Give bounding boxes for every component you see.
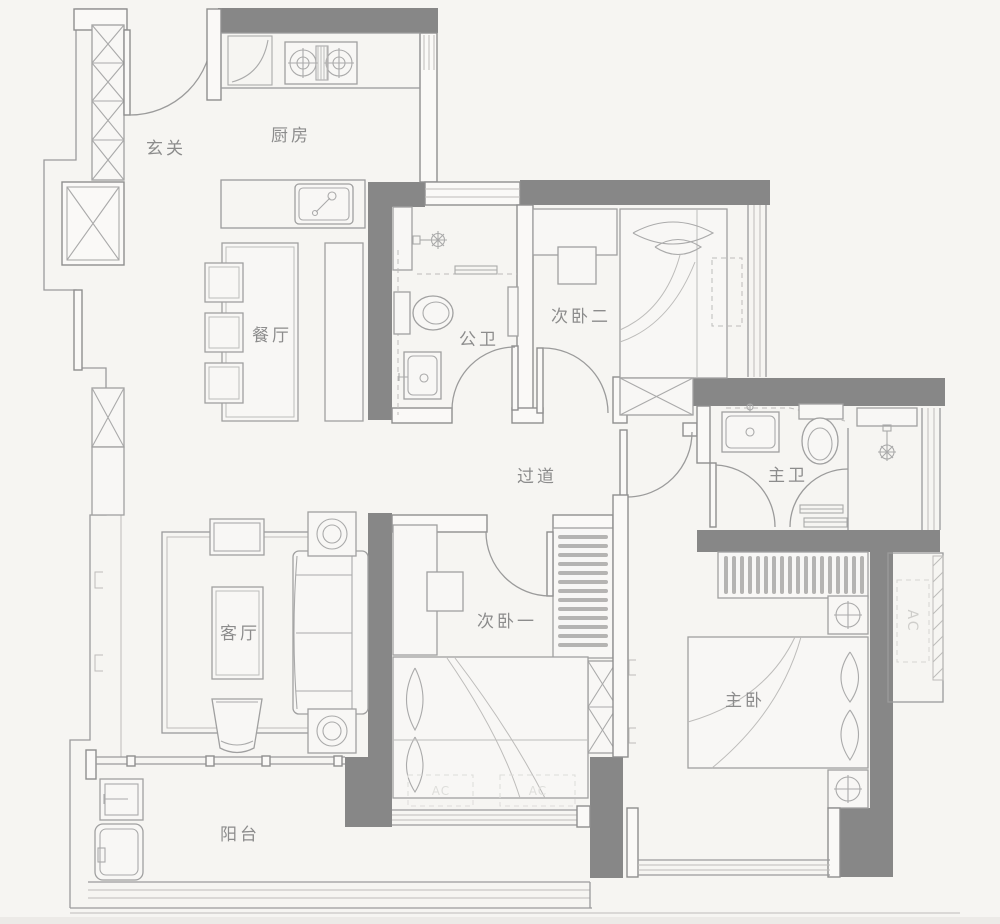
dining-chairs-icon [205, 263, 243, 403]
living-room: 客厅 [162, 512, 368, 753]
wall [613, 495, 628, 757]
master-bath-label: 主卫 [768, 466, 808, 486]
master-bath-sink-icon [722, 404, 779, 452]
bath-shelf-icon [393, 207, 412, 270]
bath-niche-icon [508, 287, 518, 336]
guest-bath-door [452, 346, 518, 410]
entry-door [124, 30, 212, 115]
hatch-strip [933, 556, 943, 680]
bedroom1-desk-icon [393, 525, 463, 655]
laundry-sink-icon [100, 779, 143, 820]
sofa-icon [293, 551, 368, 714]
master-bedroom-label: 主卧 [725, 691, 765, 711]
master-suite-door [620, 423, 697, 497]
balcony-label: 阳台 [220, 825, 260, 845]
nightstand-icon [828, 770, 868, 808]
balcony-railing [70, 882, 592, 908]
bedroom2-bed-icon [620, 209, 727, 378]
bedroom1-label: 次卧一 [477, 612, 537, 632]
bedroom1-door [486, 532, 553, 596]
floor-plan-drawing: 玄关 厨房 [0, 0, 1000, 924]
master-bathroom: 主卫 [697, 404, 944, 530]
sideboard-icon [325, 243, 363, 421]
guest-bath-window-icon [425, 182, 520, 205]
kitchen-sink-icon [295, 184, 353, 224]
balcony-slider-icon [86, 750, 345, 779]
master-toilet-icon [799, 404, 843, 464]
bedroom1-wardrobe-icon [553, 528, 613, 658]
window-bracket-icon [95, 655, 103, 671]
bedroom1-room: AC AC 次卧一 [392, 515, 617, 827]
hallway-area: 过道 [517, 423, 697, 497]
master-wardrobe-icon [718, 552, 868, 598]
kitchen-left-wall [207, 9, 221, 100]
floor-ac-label: AC [529, 784, 547, 798]
ac-platform-label: AC [904, 609, 920, 632]
entry-label: 玄关 [146, 139, 186, 159]
bedroom2-window-icon [745, 205, 769, 377]
master-window-icon [627, 808, 840, 877]
nightstand-icon [828, 596, 868, 634]
shower-head-icon [413, 231, 447, 249]
kitchen-label: 厨房 [271, 126, 311, 146]
storage-cabinet-icon [92, 388, 124, 515]
guest-bath-label: 公卫 [459, 330, 499, 350]
armchair-icon [212, 699, 262, 753]
hallway-label: 过道 [517, 467, 557, 487]
washing-machine-icon [95, 824, 143, 880]
guest-bathroom: 公卫 [392, 182, 543, 423]
corner-cabinet-icon [228, 36, 272, 85]
window-bracket-icon [95, 572, 103, 588]
shower-head-icon [878, 425, 896, 461]
hall-wall [392, 408, 452, 423]
side-table-icon [308, 709, 356, 753]
master-bedroom-room: 主卧 [613, 495, 868, 877]
master-bath-window-icon [918, 408, 944, 530]
dining-room: 餐厅 [205, 243, 363, 421]
toilet-icon [394, 292, 453, 334]
entry-room: 玄关 [62, 25, 212, 515]
bedroom2-desk-icon [533, 209, 617, 284]
foot-cabinet-icon [620, 378, 693, 415]
wall [697, 406, 710, 463]
bedroom1-window-icon [392, 806, 590, 827]
side-table-icon [308, 512, 356, 556]
towel-rack-icon [800, 505, 847, 527]
tv-icon [210, 519, 264, 555]
shoe-cabinet-icon [92, 25, 124, 180]
floor-plan: 玄关 厨房 [0, 0, 1000, 924]
window-bracket-icon [629, 660, 636, 743]
towel-bar-icon [455, 266, 497, 274]
left-wall-segment [74, 290, 82, 370]
dining-label: 餐厅 [252, 326, 292, 346]
shaft-box-icon [62, 182, 124, 265]
shower-bench-icon [857, 408, 917, 426]
master-bed-icon [688, 637, 868, 768]
bath-bedroom-wall [517, 205, 533, 415]
bedroom2-door [537, 348, 608, 413]
bath-sink-icon [399, 352, 441, 399]
bedroom1-bed-icon [393, 657, 588, 798]
floor-ac-label: AC [432, 784, 450, 798]
master-bath-door [710, 463, 775, 527]
stove-icon [285, 42, 357, 84]
bedroom2-label: 次卧二 [551, 307, 611, 327]
ac-platform: AC [888, 553, 943, 702]
living-label: 客厅 [220, 624, 260, 644]
